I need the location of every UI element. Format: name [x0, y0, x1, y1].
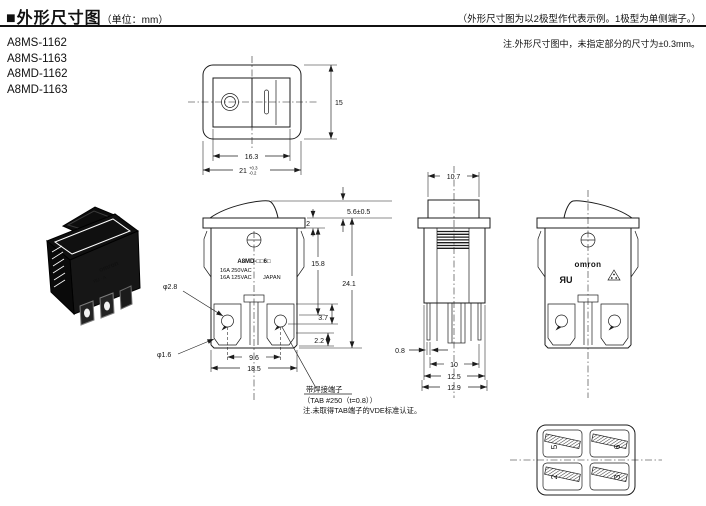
product-photo: omron ЯU · A: [47, 207, 140, 325]
dim-rocker-width: 10.7: [447, 174, 461, 181]
dim-hole-small: φ1.6: [157, 352, 171, 359]
side-ribs: [437, 232, 469, 249]
dim-rocker-height: 5.6±0.5: [347, 209, 370, 216]
dim-terminal-span: 10: [450, 362, 458, 369]
brand-logo: omron: [575, 260, 602, 269]
datasheet-page: ■外形尺寸图（单位：mm） （外形尺寸图为以2极型作代表示例。1极型为单侧端子。…: [0, 0, 706, 506]
marking-origin: JAPAN: [263, 275, 281, 281]
marking-rating2: 16A 125VAC: [220, 275, 252, 281]
dim-total-height: 24.1: [342, 281, 356, 288]
vde-mark-icon: [608, 270, 620, 280]
marking-model: A8MD-□□6□: [237, 259, 271, 265]
terminal-number: 6: [612, 444, 622, 449]
dim-depth-body: 12.5: [447, 374, 461, 381]
dim-top-inner-width: 16.3: [245, 154, 259, 161]
top-view: 15 16.3 21 +0.3 -0.2: [188, 56, 343, 176]
solder-note-title: 带焊接端子: [306, 385, 342, 394]
dim-top-height: 15: [335, 100, 343, 107]
bottom-view: 5 6 2 3: [510, 425, 662, 495]
dim-body-height: 15.8: [311, 261, 325, 268]
terminal-number: 3: [612, 474, 622, 479]
dim-top-outer-width: 21: [239, 168, 247, 175]
back-view: omron ЯU: [537, 190, 639, 398]
dim-hole-large: φ2.8: [163, 284, 177, 291]
dim-terminal-edge: 2.2: [314, 338, 324, 345]
terminal-number: 2: [549, 474, 559, 479]
dim-top-outer-width-tol-minus: -0.2: [249, 171, 257, 176]
dim-terminal-thickness: 0.8: [395, 348, 405, 355]
dim-body-width: 18.5: [247, 366, 261, 373]
solder-note-spec: （TAB #250（t=0.8））: [303, 396, 377, 405]
front-view: A8MD-□□6□ 16A 250VAC 16A 125VAC JAPAN φ2…: [157, 187, 421, 415]
terminal-number: 5: [549, 444, 559, 449]
ul-mark: ЯU: [560, 275, 573, 285]
marking-rating1: 16A 250VAC: [220, 268, 252, 274]
dim-depth-overall: 12.9: [447, 385, 461, 392]
dim-terminal-depth: 3.7: [318, 315, 328, 322]
dim-flange-thickness: 2: [306, 221, 310, 228]
dim-terminal-pitch: 9.6: [249, 355, 259, 362]
dimension-drawing: omron ЯU · A 15: [0, 0, 706, 506]
solder-note-vde: 注.未取得TAB端子的VDE标准认证。: [303, 406, 421, 415]
side-view: 10.7: [395, 166, 490, 398]
